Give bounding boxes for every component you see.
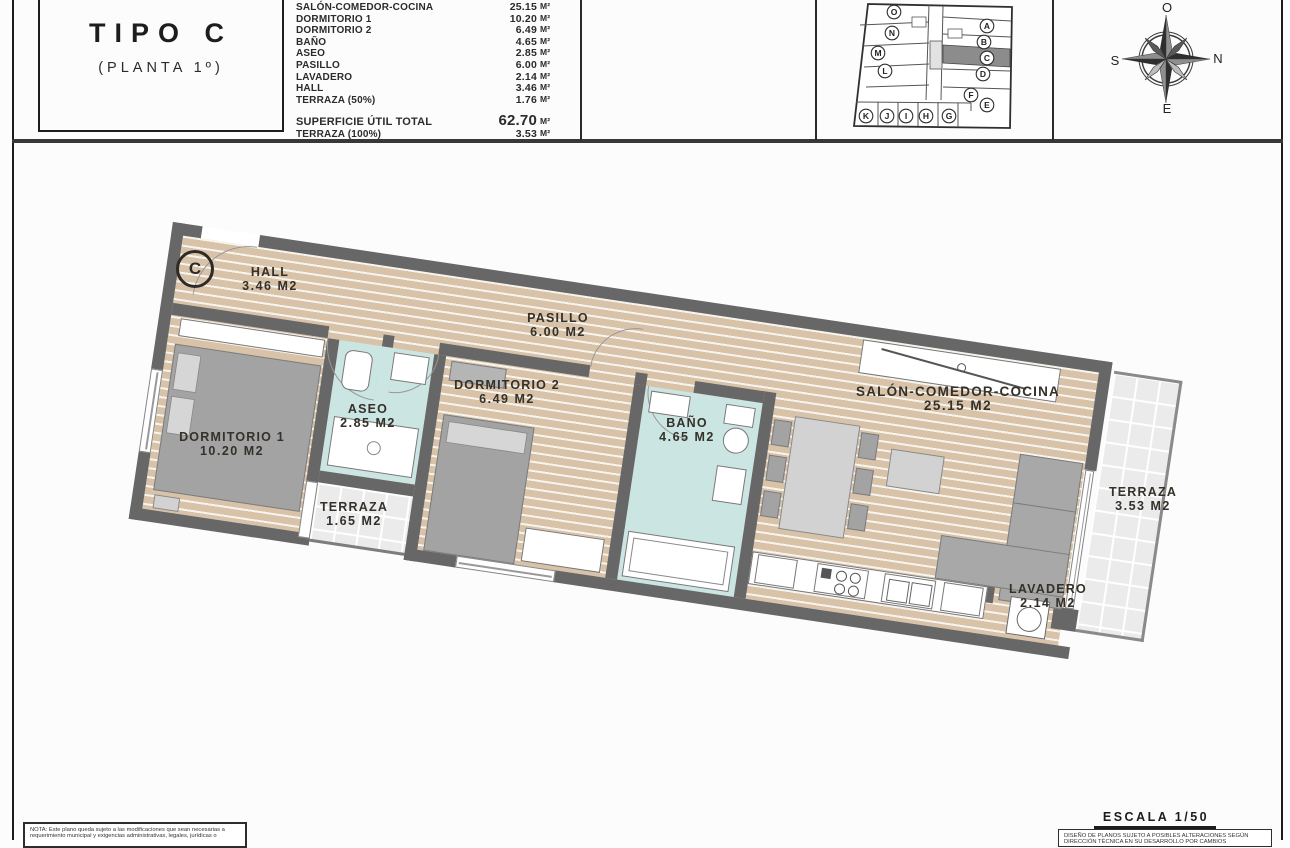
room-area: 2.85 M2 [268, 417, 468, 431]
room-area: 6.49 M2 [407, 393, 607, 407]
nota-line: requerimiento municipal y exigencias adm… [30, 833, 240, 839]
wall-segment [382, 334, 395, 347]
area-row-label: TERRAZA (50%) [296, 95, 487, 106]
keyplan-unit-c-highlight [943, 45, 1010, 67]
area-row-value: 25.15 [487, 1, 537, 13]
area-row: ASEO2.85M² [296, 47, 564, 59]
room-label-dormitorio2: DORMITORIO 2 6.49 M2 [407, 379, 607, 406]
page-border-right [1281, 0, 1283, 840]
dining-chair [760, 490, 782, 518]
header-separator [12, 139, 1283, 143]
room-name: HALL [170, 266, 370, 280]
area-row-unit: M² [537, 82, 564, 92]
room-label-dormitorio1: DORMITORIO 1 10.20 M2 [132, 431, 332, 458]
area-row-unit: M² [537, 47, 564, 57]
area-row-unit: M² [537, 24, 564, 34]
area-row-unit: M² [537, 13, 564, 23]
stove-burner [849, 572, 862, 585]
keyplan-unit-label: F [968, 90, 973, 100]
keyplan-unit-label: J [885, 111, 890, 121]
area-row-unit: M² [537, 71, 564, 81]
area-row-value: 4.65 [487, 36, 537, 48]
room-label-salon: SALÓN-COMEDOR-COCINA 25.15 M2 [848, 385, 1068, 412]
area-row-label: HALL [296, 83, 487, 94]
compass-label-north: N [1210, 51, 1226, 66]
area-row-label: PASILLO [296, 60, 487, 71]
room-area: 10.20 M2 [132, 445, 332, 459]
area-terraza-total-row: TERRAZA (100%) 3.53 M² [296, 128, 564, 140]
area-schedule: SALÓN-COMEDOR-COCINA25.15M² DORMITORIO 1… [296, 1, 564, 140]
room-area: 25.15 M2 [848, 399, 1068, 413]
header-divider-1 [580, 0, 582, 140]
area-row-value: 6.49 [487, 24, 537, 36]
sheet: { "header": { "title": "TIPO C", "subtit… [0, 0, 1290, 840]
room-label-pasillo: PASILLO 6.00 M2 [458, 312, 658, 339]
page-border-left [12, 0, 14, 840]
area-row: BAÑO4.65M² [296, 36, 564, 48]
area-total-row: SUPERFICIE ÚTIL TOTAL 62.70 M² [296, 112, 564, 128]
dining-chair [847, 503, 869, 531]
area-row-label: DORMITORIO 1 [296, 14, 487, 25]
room-label-lavadero: LAVADERO 2.14 M2 [948, 583, 1148, 610]
nota-box: NOTA: Este plano queda sujeto a las modi… [23, 822, 247, 848]
escala-label: ESCALA 1/50 [1096, 810, 1216, 824]
room-area: 3.46 M2 [170, 280, 370, 294]
dining-chair [858, 432, 880, 460]
area-terraza-label: TERRAZA (100%) [296, 129, 487, 140]
keyplan-unit-label: M [874, 48, 881, 58]
area-row: DORMITORIO 26.49M² [296, 24, 564, 36]
stove-burner [847, 585, 860, 598]
fridge [754, 554, 798, 589]
room-label-bano: BAÑO 4.65 M2 [587, 417, 787, 444]
room-label-terraza2: TERRAZA 3.53 M2 [1043, 486, 1243, 513]
room-name: DORMITORIO 2 [407, 379, 607, 393]
area-row: DORMITORIO 110.20M² [296, 13, 564, 25]
room-area: 2.14 M2 [948, 597, 1148, 611]
bathtub-basin [628, 538, 728, 586]
room-name: LAVADERO [948, 583, 1148, 597]
area-row-unit: M² [537, 1, 564, 11]
area-row-label: ASEO [296, 48, 487, 59]
area-row-label: DORMITORIO 2 [296, 25, 487, 36]
dining-chair [852, 468, 874, 496]
title-block: TIPO C (PLANTA 1º) [38, 0, 284, 132]
sink [712, 465, 747, 505]
keyplan-unit-label: B [981, 37, 987, 47]
keyplan-unit-label: N [889, 28, 895, 38]
area-row-unit: M² [537, 59, 564, 69]
area-row: LAVADERO2.14M² [296, 71, 564, 83]
keyplan-unit-label: I [905, 111, 907, 121]
room-name: SALÓN-COMEDOR-COCINA [848, 385, 1068, 399]
area-terraza-unit: M² [537, 128, 564, 138]
keyplan-unit-label: O [891, 7, 898, 17]
room-name: DORMITORIO 1 [132, 431, 332, 445]
coffee-table [886, 449, 945, 495]
keyplan-unit-label: H [923, 111, 929, 121]
dining-chair [765, 455, 787, 483]
area-row-label: SALÓN-COMEDOR-COCINA [296, 2, 487, 13]
area-row: HALL3.46M² [296, 82, 564, 94]
page-subtitle: (PLANTA 1º) [40, 60, 282, 76]
area-row-value: 10.20 [487, 13, 537, 25]
disclaimer-box: DISEÑO DE PLANOS SUJETO A POSIBLES ALTER… [1058, 829, 1272, 847]
room-name: BAÑO [587, 417, 787, 431]
keyplan-unit-label-c: C [984, 53, 990, 63]
keyplan-unit-label: G [946, 111, 953, 121]
stove-burner [833, 583, 846, 596]
room-area: 4.65 M2 [587, 431, 787, 445]
keyplan-unit-label: E [984, 100, 990, 110]
compass-rose-icon [1118, 11, 1214, 107]
area-row-unit: M² [537, 94, 564, 104]
area-row-value: 2.14 [487, 71, 537, 83]
keyplan-unit-label: A [984, 21, 990, 31]
area-row: SALÓN-COMEDOR-COCINA25.15M² [296, 1, 564, 13]
area-total-value: 62.70 [487, 112, 537, 129]
area-row: PASILLO6.00M² [296, 59, 564, 71]
room-label-hall: HALL 3.46 M2 [170, 266, 370, 293]
area-total-unit: M² [537, 116, 564, 126]
area-row-value: 2.85 [487, 47, 537, 59]
keyplan-unit-label: K [863, 111, 870, 121]
area-row-label: BAÑO [296, 37, 487, 48]
area-terraza-value: 3.53 [487, 128, 537, 140]
sink-basin [886, 579, 910, 604]
wall-pillar [1051, 606, 1079, 631]
room-name: TERRAZA [1043, 486, 1243, 500]
shower-drain [366, 440, 382, 456]
toilet [340, 349, 374, 393]
keyplan-unit-label: L [882, 66, 887, 76]
area-row-value: 1.76 [487, 94, 537, 106]
stove-panel [821, 568, 832, 579]
area-row-value: 6.00 [487, 59, 537, 71]
room-name: PASILLO [458, 312, 658, 326]
room-label-terraza1: TERRAZA 1.65 M2 [254, 501, 454, 528]
area-row-value: 3.46 [487, 82, 537, 94]
page-title: TIPO C [40, 18, 282, 49]
area-row: TERRAZA (50%)1.76M² [296, 94, 564, 106]
area-total-label: SUPERFICIE ÚTIL TOTAL [296, 116, 487, 128]
key-plan: O N M L K J I H G A B C D F E [826, 1, 1060, 133]
area-row-unit: M² [537, 36, 564, 46]
room-name: TERRAZA [254, 501, 454, 515]
header-divider-2 [815, 0, 817, 140]
area-row-label: LAVADERO [296, 72, 487, 83]
room-area: 3.53 M2 [1043, 500, 1243, 514]
sink-basin [909, 582, 933, 607]
stove-burner [835, 570, 848, 583]
room-label-aseo: ASEO 2.85 M2 [268, 403, 468, 430]
disclaimer-line: DIRECCIÓN TÉCNICA EN SU DESARROLLO POR C… [1064, 839, 1266, 845]
room-area: 1.65 M2 [254, 515, 454, 529]
compass-label-east: E [1159, 101, 1175, 116]
compass-label-west: O [1159, 0, 1175, 15]
keyplan-unit-label: D [980, 69, 986, 79]
room-area: 6.00 M2 [458, 326, 658, 340]
compass-label-south: S [1107, 53, 1123, 68]
